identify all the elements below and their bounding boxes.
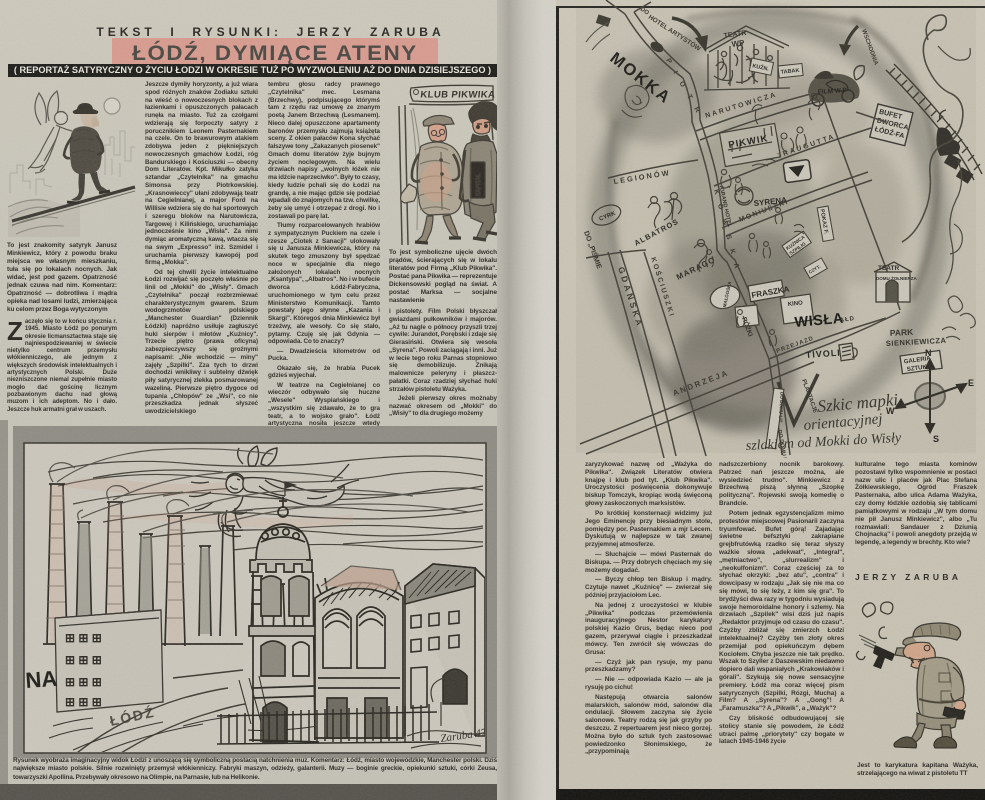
- svg-text:E: E: [968, 378, 974, 388]
- svg-text:NA: NA: [25, 666, 59, 693]
- svg-text:N: N: [925, 348, 932, 358]
- svg-text:PARK: PARK: [890, 327, 915, 338]
- svg-text:TEATR: TEATR: [878, 265, 899, 272]
- svg-text:⊞ ⊞ ⊞: ⊞ ⊞ ⊞: [65, 695, 102, 709]
- svg-text:⊞ ⊞ ⊞: ⊞ ⊞ ⊞: [65, 675, 102, 689]
- svg-text:KLUB PIKWIKA: KLUB PIKWIKA: [420, 90, 496, 101]
- svg-text:KAPITAŁ: KAPITAŁ: [476, 174, 482, 196]
- svg-text:WP: WP: [731, 38, 746, 49]
- svg-text:S: S: [933, 434, 939, 444]
- svg-text:⊞ ⊞ ⊞: ⊞ ⊞ ⊞: [65, 653, 102, 667]
- svg-text:⊞ ⊞ ⊞: ⊞ ⊞ ⊞: [65, 631, 102, 645]
- svg-text:DOMU ŻOŁNIERZA: DOMU ŻOŁNIERZA: [876, 275, 917, 281]
